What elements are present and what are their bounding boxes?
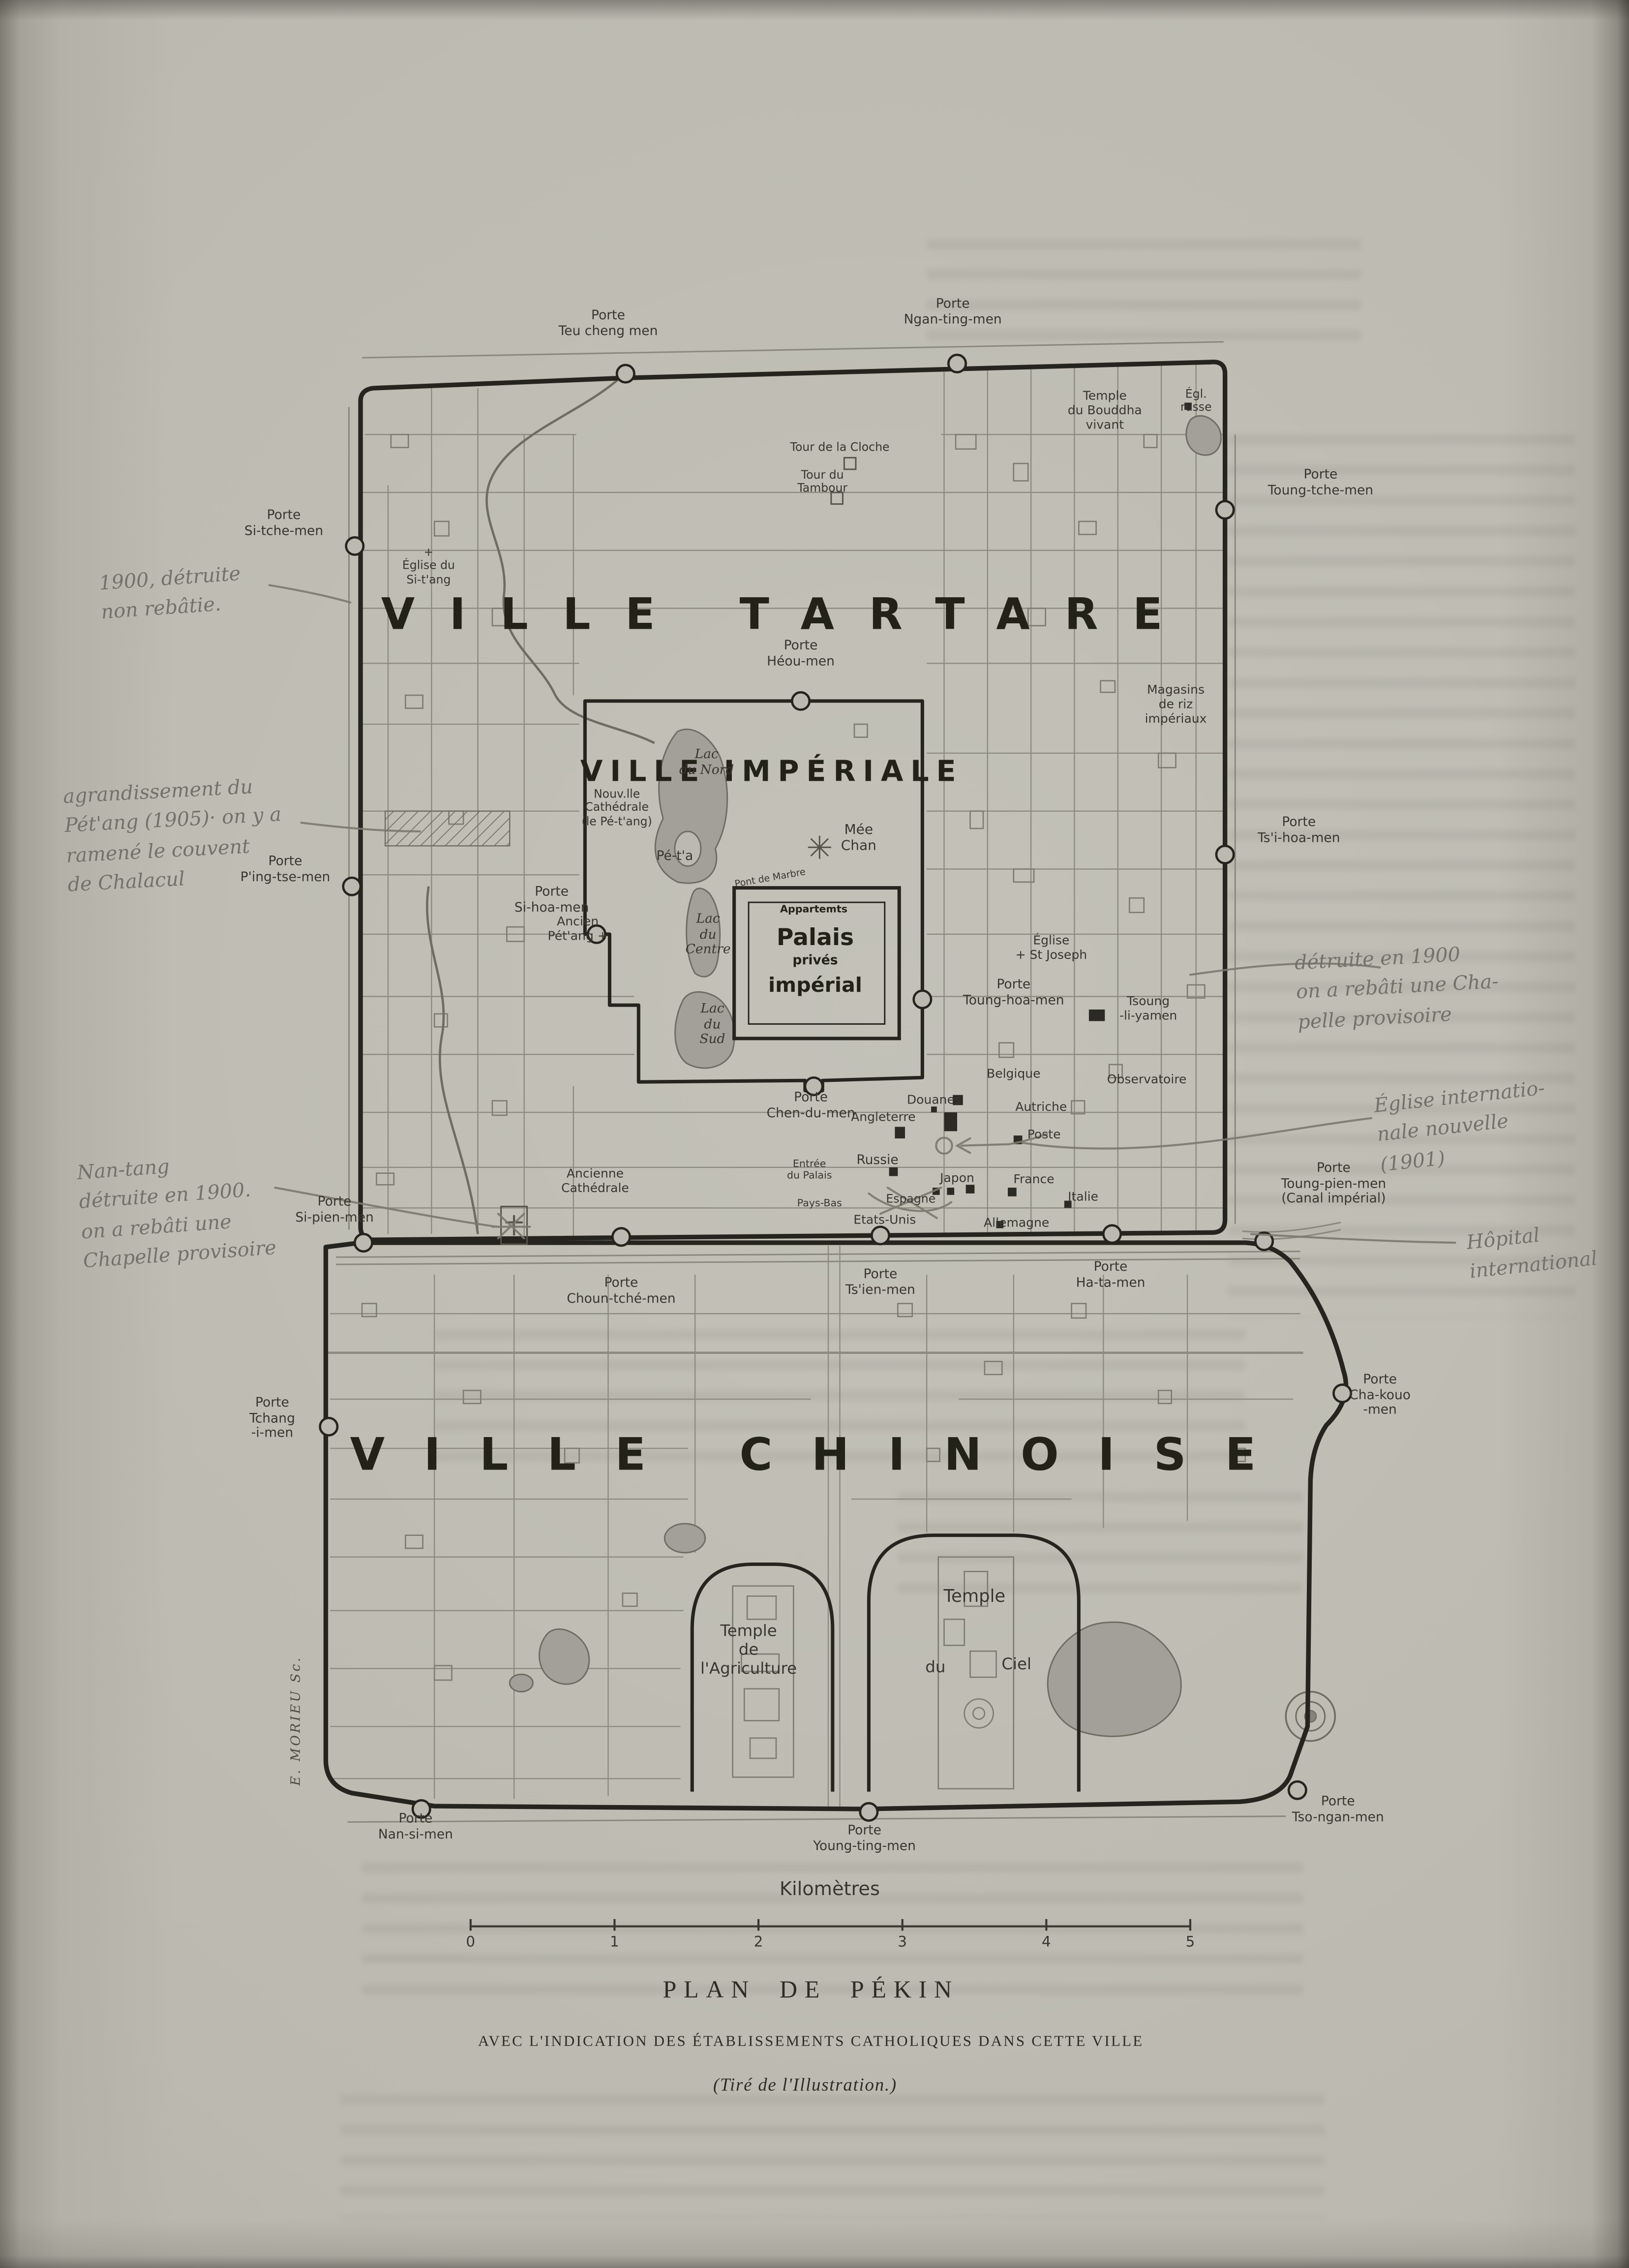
temple-du-ciel-ciel-label: Ciel (1001, 1656, 1031, 1675)
gate-si-hoa-men: PorteSi-hoa-men (514, 886, 589, 916)
scalebar-tick-4: 4 (1042, 1935, 1051, 1951)
gate-toung-pien-men: PorteToung-pien-men(Canal impérial) (1281, 1162, 1387, 1208)
gate-young-ting-men: PorteYoung-ting-men (813, 1824, 916, 1855)
russie-label: Russie (856, 1154, 898, 1169)
annotation-nan-tang: Nan-tangdétruite en 1900.on a rebâti une… (76, 1146, 277, 1276)
mee-chan-label: MéeChan (841, 823, 876, 855)
ville-chinoise-label: VILLE CHINOISE (350, 1429, 1295, 1482)
nouvelle-cathedrale-label: Nouv.lleCathédrale(le Pé-t'ang) (581, 788, 652, 828)
autriche-label: Autriche (1015, 1101, 1067, 1115)
magasins-riz-label: Magasinsde rizimpériaux (1145, 683, 1207, 727)
lac-du-centre-label: LacduCentre (686, 913, 731, 959)
allemagne-label: Allemagne (984, 1217, 1049, 1231)
poste-label: Poste (1027, 1128, 1061, 1142)
pe-ta-label: Pé-t'a (656, 850, 693, 865)
ancienne-cathedrale-label: AncienneCathédrale (561, 1167, 629, 1196)
gate-si-pien-men: PorteSi-pien-men (295, 1195, 373, 1226)
gate-chen-du-men: PorteChen-du-men (767, 1091, 855, 1122)
etats-unis-label: Etats-Unis (853, 1214, 916, 1228)
temple-agriculture-label: Templedel'Agriculture (700, 1623, 797, 1680)
gate-tsi-hoa-men: PorteTs'i-hoa-men (1258, 816, 1340, 847)
annotation-detruite-est: détruite en 1900on a rebâti une Cha-pell… (1294, 939, 1501, 1037)
angleterre-label: Angleterre (851, 1111, 915, 1125)
scalebar-tick-2: 2 (754, 1935, 763, 1951)
ville-tartare-label: VILLE TARTARE (381, 590, 1197, 641)
annotation-eglise-internationale: Église internatio-nale nouvelle(1901) (1373, 1074, 1552, 1179)
annotation-sitang-detruite: 1900, détruitenon rebâtie. (98, 560, 244, 628)
imperial-label: impérial (768, 975, 862, 999)
eglise-russe-label: Égl.russe (1180, 388, 1212, 415)
map-subtitle: AVEC L'INDICATION DES ÉTABLISSEMENTS CAT… (478, 2034, 1144, 2050)
temple-bouddha-label: Templedu Bouddhavivant (1068, 390, 1142, 433)
appartements-label: Appartemts (780, 904, 847, 916)
tour-du-tambour-label: Tour duTambour (797, 469, 847, 496)
gate-heou-men: PorteHéou-men (767, 639, 835, 670)
gate-ngan-ting-men: PorteNgan-ting-men (904, 298, 1002, 328)
eglise-st-joseph-label: Église+ St Joseph (1016, 934, 1087, 963)
tsoung-li-yamen-label: Tsoung-li-yamen (1119, 995, 1177, 1024)
scalebar-tick-0: 0 (466, 1935, 475, 1951)
espagne-label: Espagne (886, 1193, 935, 1206)
lac-du-sud-label: LacduSud (699, 1003, 725, 1049)
france-label: France (1013, 1173, 1054, 1188)
tour-de-la-cloche-label: Tour de la Cloche (790, 441, 889, 455)
palais-label: Palais (777, 925, 854, 952)
gate-tso-ngan-men: PorteTso-ngan-men (1292, 1795, 1384, 1826)
map-title: PLAN DE PÉKIN (663, 1976, 959, 2005)
scalebar-label: Kilomètres (780, 1879, 880, 1901)
gate-cha-kouo-men: PorteCha-kouo-men (1349, 1373, 1411, 1419)
eglise-si-tang-label: +Église duSi-t'ang (402, 546, 455, 586)
engraver-credit: E. MORIEU Sc. (290, 1655, 304, 1785)
annotation-agrandissement-petang: agrandissement duPét'ang (1905)· on y ar… (62, 771, 285, 900)
temple-du-ciel-label: Temple (943, 1586, 1005, 1606)
scalebar-tick-1: 1 (610, 1935, 619, 1951)
gate-toung-hoa-men: PorteToung-hoa-men (963, 978, 1064, 1009)
gate-tchang-i-men: PorteTchang-i-men (249, 1396, 295, 1442)
ancien-petang-label: AncienPét'ang + (547, 916, 607, 945)
japon-label: Japon (940, 1172, 974, 1186)
gate-choun-tche-men: PorteChoun-tché-men (567, 1277, 675, 1307)
lac-du-nord-label: Lacdu Nord (679, 748, 734, 778)
ville-imperiale-label: VILLE IMPÉRIALE (580, 755, 964, 789)
scalebar-tick-3: 3 (898, 1935, 907, 1951)
pays-bas-label: Pays-Bas (797, 1197, 842, 1209)
gate-si-tche-men: PorteSi-tche-men (244, 509, 323, 539)
scanned-book-page: E. MORIEU Sc. Kilomètres 012345 PLAN DE … (0, 0, 1629, 2268)
gate-nan-si-men: PorteNan-si-men (378, 1812, 453, 1843)
map-credit: (Tiré de l'Illustration.) (713, 2075, 897, 2096)
gate-tsien-men: PorteTs'ien-men (845, 1268, 915, 1298)
entree-du-palais-label: Entréedu Palais (787, 1158, 832, 1182)
observatoire-label: Observatoire (1107, 1073, 1187, 1087)
temple-du-ciel-du-label: du (925, 1659, 945, 1678)
italie-label: Italie (1068, 1191, 1098, 1205)
douanes-label: Douanes (907, 1094, 961, 1108)
belgique-label: Belgique (987, 1068, 1041, 1082)
scalebar-tick-5: 5 (1186, 1935, 1195, 1951)
gate-ha-ta-men: PorteHa-ta-men (1076, 1260, 1146, 1291)
gate-teu-cheng-men: PorteTeu cheng men (559, 309, 658, 339)
prives-label: privés (792, 954, 838, 969)
gate-toung-tche-men: PorteToung-tche-men (1268, 468, 1373, 499)
